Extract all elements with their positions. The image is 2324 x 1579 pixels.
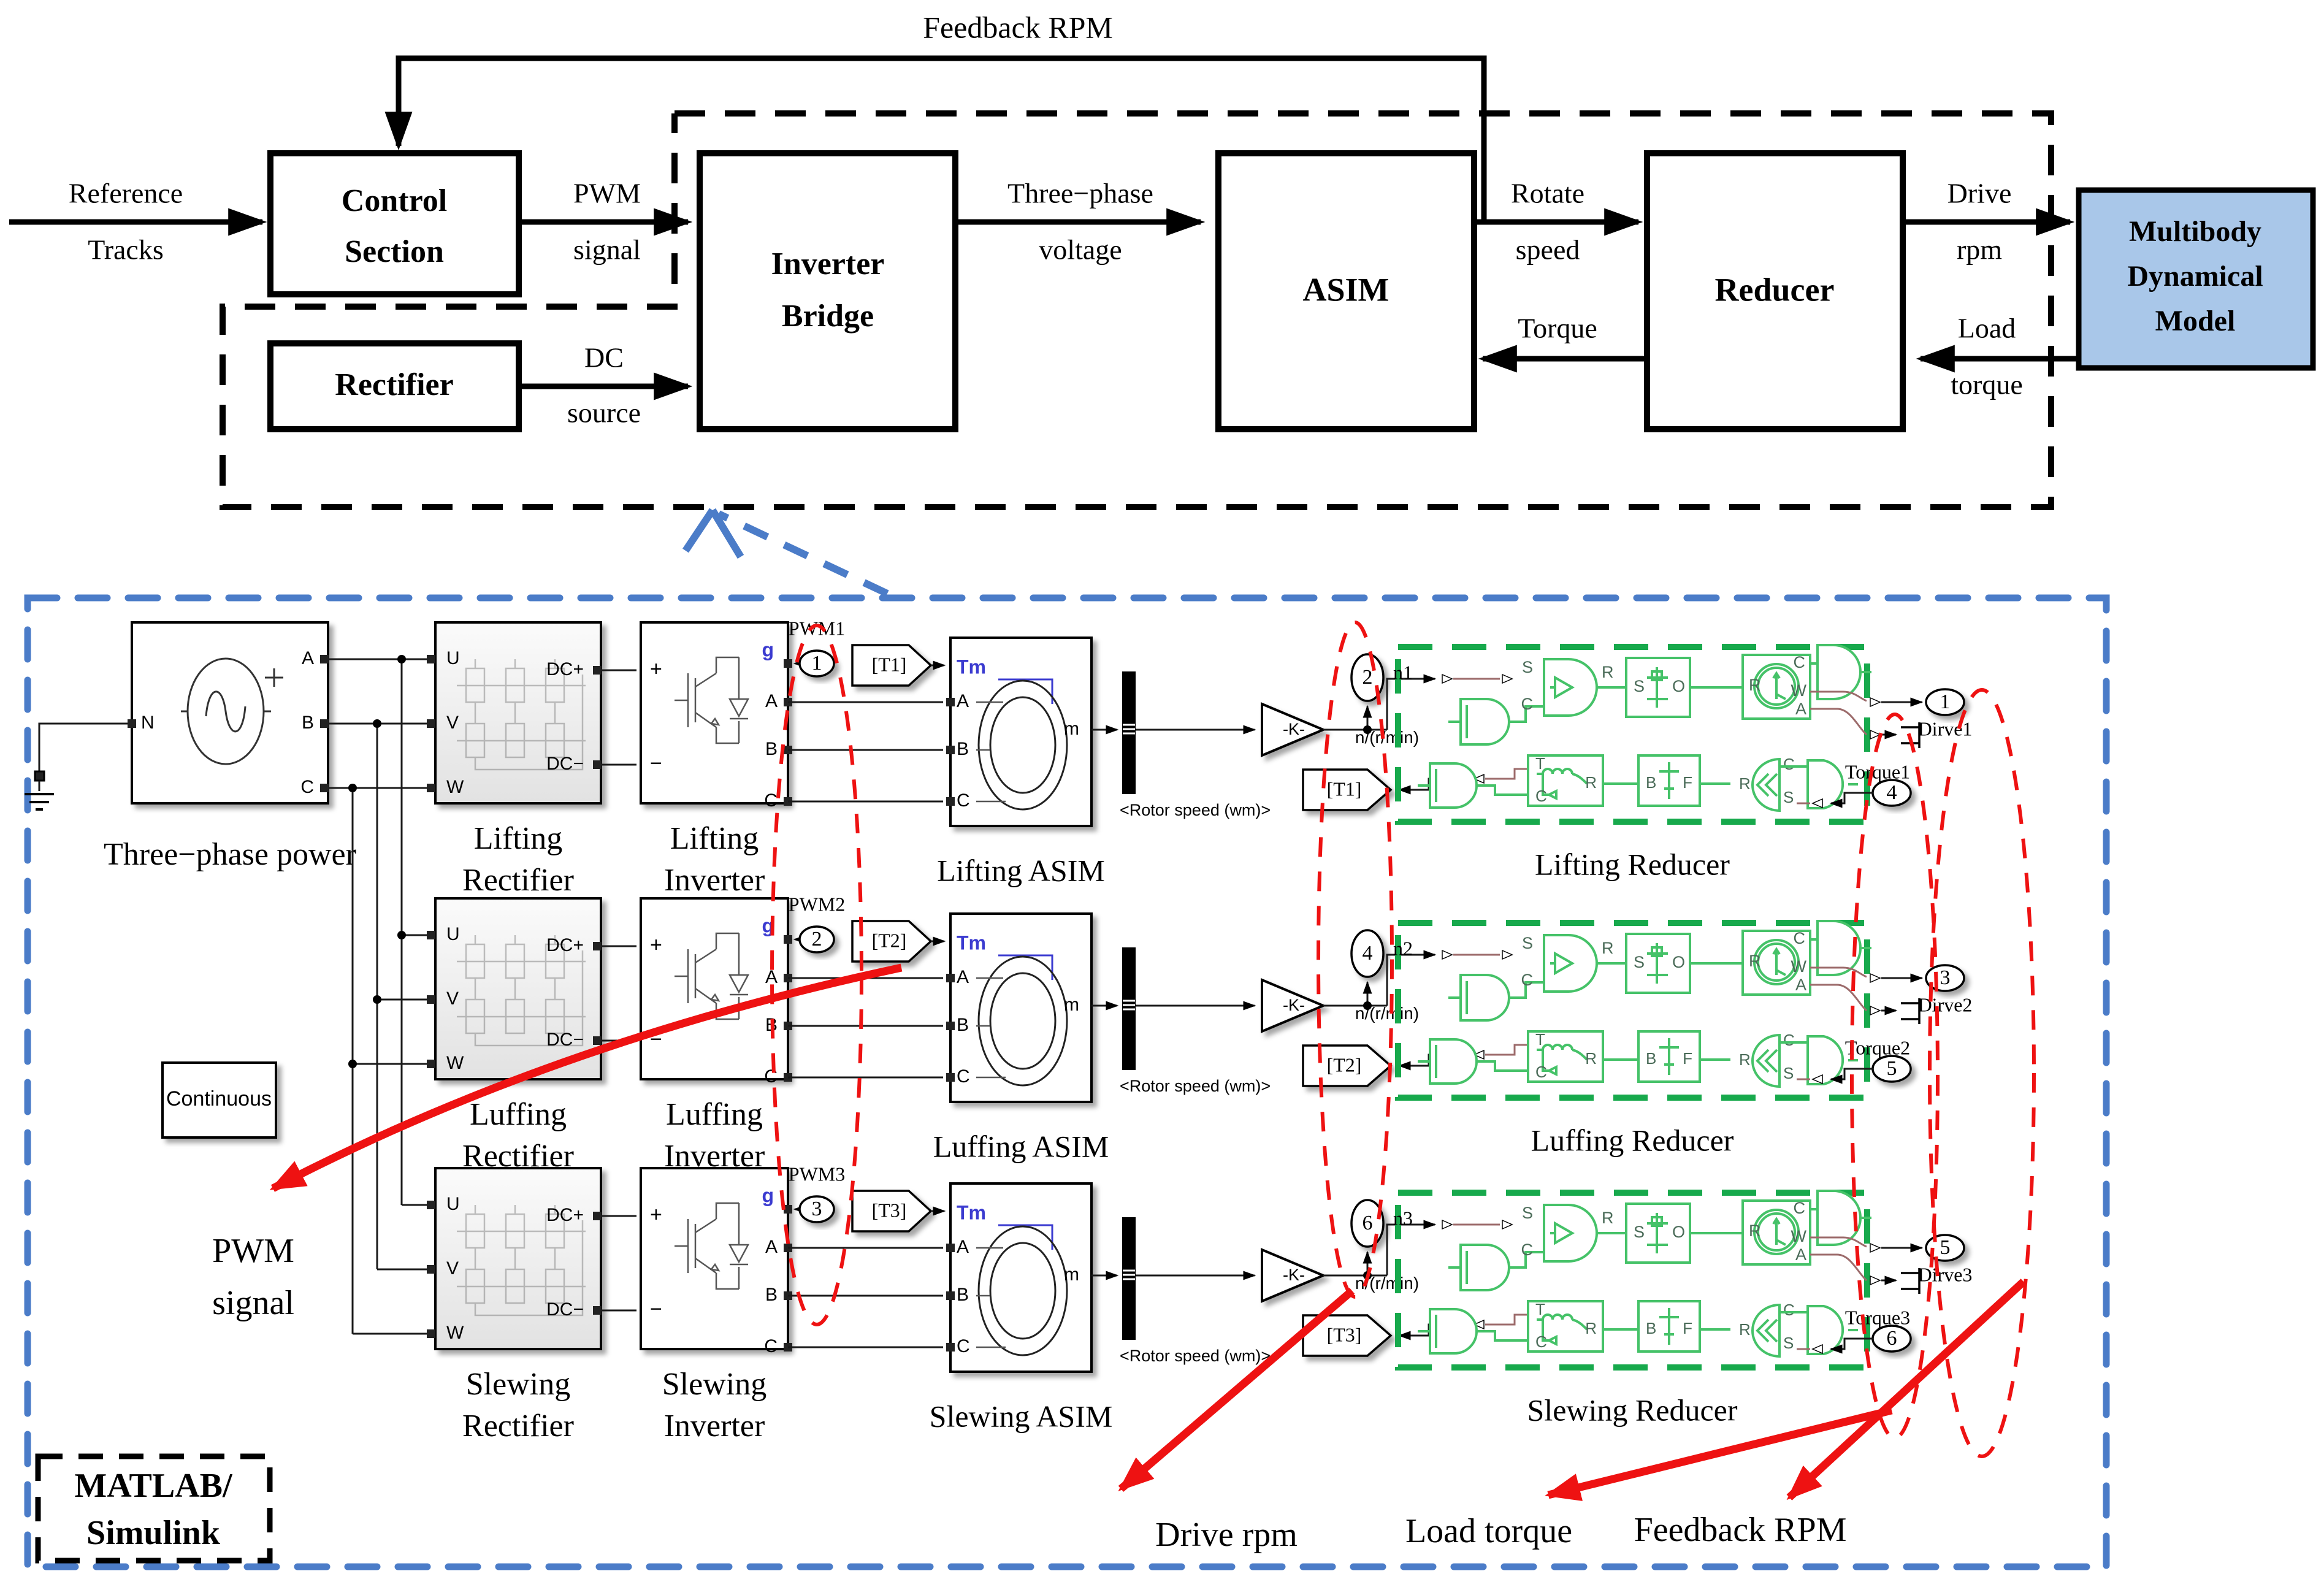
pwm1-port-number: 1: [812, 652, 822, 675]
multibody-label-2: Dynamical: [2127, 260, 2263, 292]
three-phase-source-block: N A B C: [128, 622, 329, 803]
pwm-label-2: signal: [573, 234, 641, 266]
lifting-inverter-label-2: Inverter: [664, 863, 765, 898]
reference-label-1: Reference: [69, 178, 183, 209]
goto-tag3: [T3]: [872, 1199, 907, 1221]
slewing-rectifier-label-1: Slewing: [466, 1367, 570, 1402]
dirve1-label: Dirve1: [1918, 717, 1973, 740]
lifting-asim-label: Lifting ASIM: [937, 853, 1105, 887]
rectifier-label: Rectifier: [335, 367, 453, 402]
reference-label-2: Tracks: [88, 234, 164, 266]
from-tag2: [T2]: [1327, 1053, 1362, 1076]
load-label-2: torque: [1951, 369, 2023, 400]
inverter-bridge-box: [700, 153, 955, 429]
powergui-block: Continuous: [162, 1063, 276, 1137]
luffing-row: [427, 898, 1964, 1102]
from-tag1: [T1]: [1327, 778, 1362, 800]
drive-label-2: rpm: [1957, 234, 2002, 266]
control-label-1: Control: [342, 183, 447, 218]
drive-rpm-callout: Drive rpm: [1155, 1516, 1298, 1554]
luffing-rectifier-label-1: Luffing: [470, 1097, 567, 1132]
pwm3-label: PWM3: [789, 1163, 845, 1185]
dc-label-1: DC: [584, 342, 624, 373]
matlab-label-1: MATLAB/: [74, 1467, 233, 1505]
phase-bus-wires: [329, 655, 431, 1334]
torque3-label: Torque3: [1845, 1306, 1910, 1328]
pwm-label-1: PWM: [573, 178, 641, 209]
lifting-rectifier-label-2: Rectifier: [462, 863, 574, 898]
matlab-simulink-tag: MATLAB/ Simulink: [38, 1456, 270, 1561]
source-label: Three−phase power: [104, 837, 356, 872]
figure-canvas: U V W DC+ DC− g + − A B C: [0, 0, 2324, 1579]
load-label-1: Load: [1958, 313, 2016, 344]
luffing-rectifier-label-2: Rectifier: [462, 1139, 574, 1174]
goto-tag1: [T1]: [872, 653, 907, 675]
lifting-reducer-label: Lifting Reducer: [1535, 847, 1730, 881]
slewing-inverter-label-1: Slewing: [662, 1367, 766, 1402]
source-b-label: B: [302, 713, 314, 733]
luffing-inverter-label-2: Inverter: [664, 1139, 765, 1174]
drive-label-1: Drive: [1947, 178, 2012, 209]
slewing-reducer-label: Slewing Reducer: [1527, 1393, 1738, 1427]
luffing-reducer-label: Luffing Reducer: [1531, 1123, 1734, 1157]
n3-label: n3: [1393, 1207, 1413, 1229]
lifting-row: [427, 622, 1964, 826]
continuous-label: Continuous: [166, 1087, 272, 1111]
multibody-label-3: Model: [2155, 305, 2236, 337]
torque-label: Torque: [1518, 313, 1597, 344]
feedback-rpm-label: Feedback RPM: [923, 10, 1113, 44]
zoom-callout-arrow: [686, 510, 887, 594]
slewing-asim-label: Slewing ASIM: [930, 1399, 1113, 1433]
dirve2-label: Dirve2: [1918, 993, 1973, 1015]
inverter-label-1: Inverter: [771, 247, 885, 281]
dirve3-label: Dirve3: [1918, 1263, 1973, 1285]
control-section-box: [270, 153, 519, 294]
dirve2-port-number: 3: [1940, 966, 1951, 989]
simulink-model: N A B C Three−phase power PWM1 1 [T1] [T…: [25, 598, 2106, 1567]
pwm2-port-number: 2: [812, 928, 822, 950]
asim-label: ASIM: [1302, 271, 1389, 308]
slewing-row: [427, 1168, 1964, 1372]
load-torque-callout: Load torque: [1405, 1512, 1572, 1550]
luffing-inverter-label-1: Luffing: [666, 1097, 763, 1132]
multibody-label-1: Multibody: [2129, 215, 2261, 248]
feedback-rpm-callout: Feedback RPM: [1634, 1511, 1847, 1549]
slewing-inverter-label-2: Inverter: [664, 1409, 765, 1443]
torque2-port-number: 5: [1887, 1057, 1897, 1080]
torque2-label: Torque2: [1845, 1036, 1910, 1058]
n1-port-number: 2: [1363, 666, 1373, 689]
n2-label: n2: [1393, 937, 1413, 959]
n3-port-number: 6: [1363, 1212, 1373, 1234]
pwm2-label: PWM2: [789, 893, 845, 915]
torque1-port-number: 4: [1887, 781, 1897, 804]
top-flowchart: Feedback RPM Reference Tracks Control Se…: [9, 10, 2313, 507]
dc-label-2: source: [567, 397, 641, 429]
goto-tag2: [T2]: [872, 929, 907, 951]
voltage-label-2: voltage: [1039, 234, 1122, 266]
luffing-asim-label: Luffing ASIM: [933, 1129, 1109, 1163]
source-n-label: N: [141, 713, 155, 733]
reducer-label: Reducer: [1715, 271, 1835, 308]
lifting-rectifier-label-1: Lifting: [474, 821, 562, 856]
voltage-label-1: Three−phase: [1007, 178, 1153, 209]
dirve3-port-number: 5: [1940, 1236, 1951, 1259]
pwm-signal-label-1: PWM: [212, 1232, 294, 1270]
slewing-rectifier-label-2: Rectifier: [462, 1409, 574, 1443]
pwm-signal-label-2: signal: [212, 1284, 294, 1322]
matlab-label-2: Simulink: [86, 1514, 221, 1552]
pwm1-label: PWM1: [789, 617, 845, 639]
ground-node: [25, 724, 128, 809]
source-c-label: C: [300, 777, 314, 797]
rotate-label-1: Rotate: [1511, 178, 1584, 209]
rotate-label-2: speed: [1516, 234, 1580, 266]
from-tag3: [T3]: [1327, 1323, 1362, 1345]
control-label-2: Section: [345, 234, 444, 269]
n1-label: n1: [1393, 661, 1413, 683]
pwm3-port-number: 3: [812, 1198, 822, 1220]
torque1-label: Torque1: [1845, 760, 1910, 782]
lifting-inverter-label-1: Lifting: [670, 821, 759, 856]
torque3-port-number: 6: [1887, 1327, 1897, 1350]
source-a-label: A: [302, 648, 314, 668]
n2-port-number: 4: [1363, 942, 1373, 965]
dirve1-port-number: 1: [1940, 690, 1951, 713]
inverter-label-2: Bridge: [782, 299, 874, 334]
